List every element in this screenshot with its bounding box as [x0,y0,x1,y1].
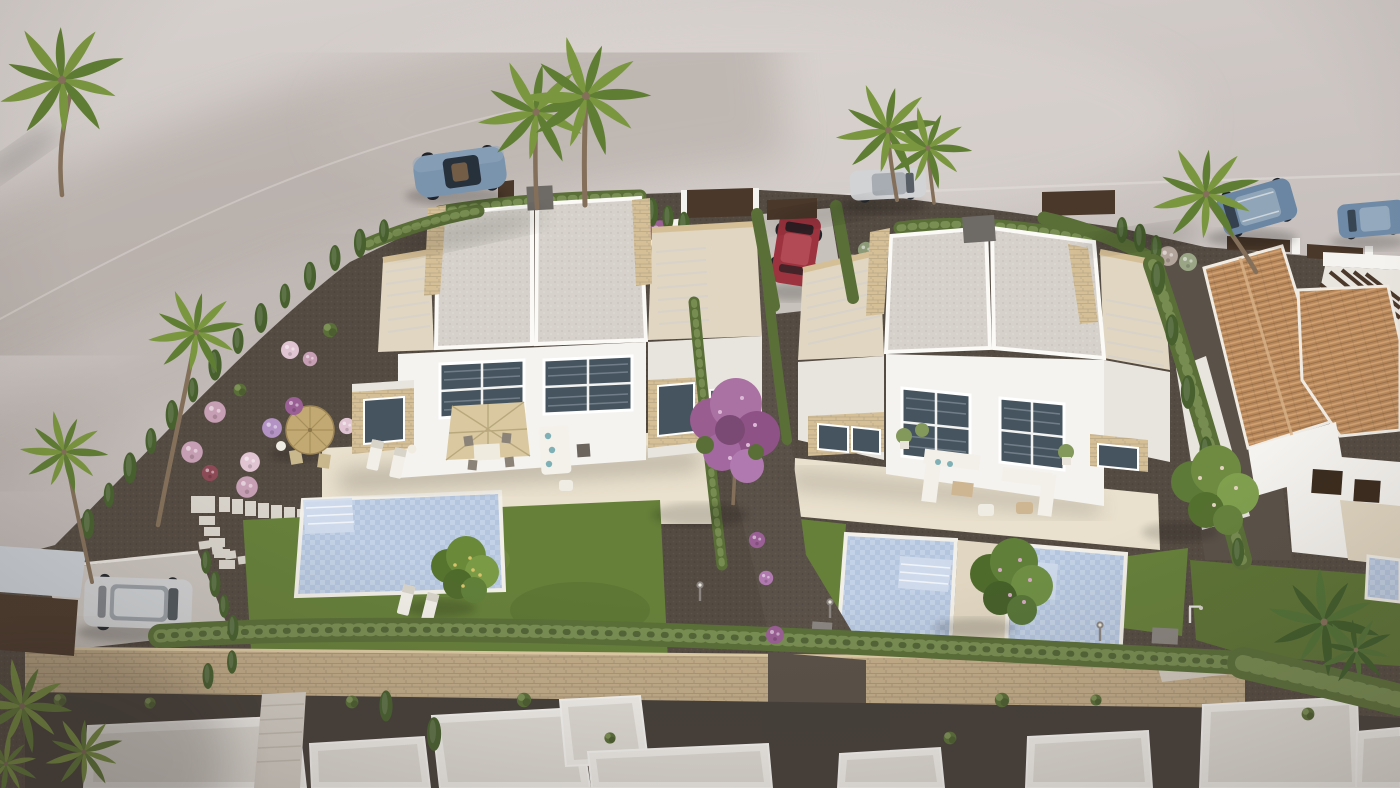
aerial-render [0,0,1400,788]
vignette [0,0,1400,788]
